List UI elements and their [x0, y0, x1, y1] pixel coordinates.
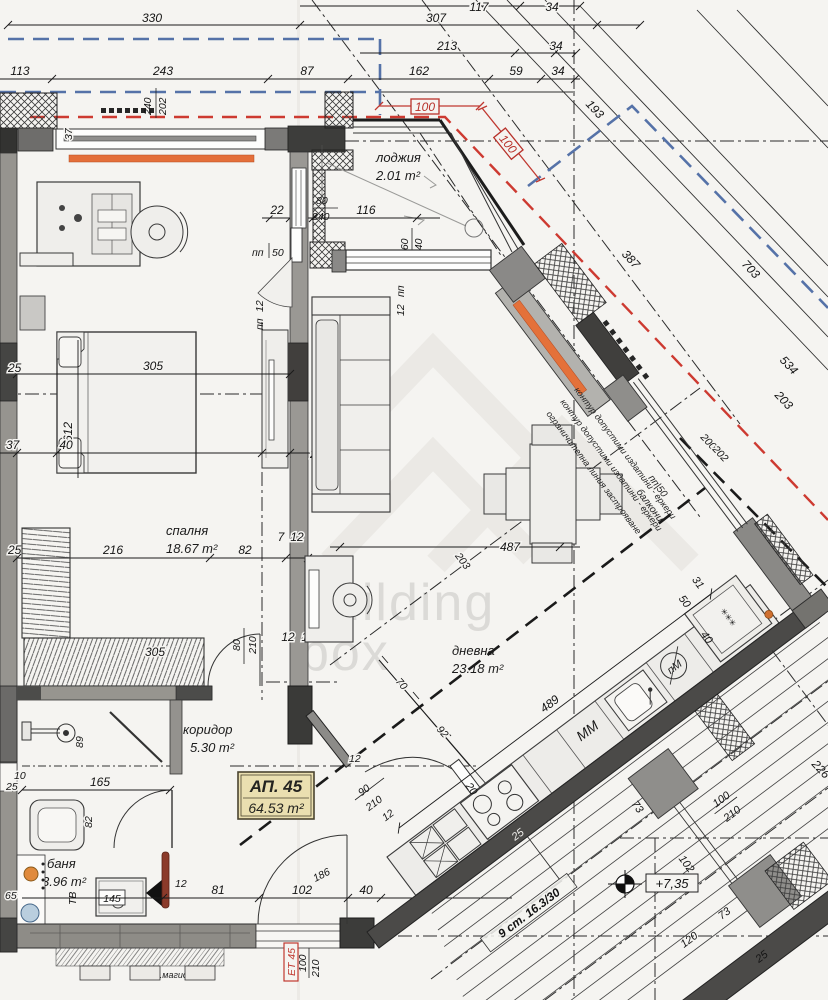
svg-text:307: 307 [426, 11, 447, 25]
svg-text:12: 12 [395, 304, 407, 316]
svg-text:5.30 m²: 5.30 m² [190, 740, 235, 755]
svg-text:дневна: дневна [452, 643, 495, 658]
svg-text:25: 25 [7, 361, 22, 375]
svg-text:пп: пп [252, 247, 264, 259]
svg-text:ЕТ 45: ЕТ 45 [286, 948, 298, 976]
svg-text:34: 34 [551, 64, 565, 78]
svg-text:82: 82 [238, 543, 252, 557]
svg-text:213: 213 [436, 39, 457, 53]
svg-text:165: 165 [90, 775, 110, 789]
svg-text:18.67 m²: 18.67 m² [166, 541, 218, 556]
svg-text:162: 162 [409, 64, 429, 78]
svg-text:81: 81 [211, 883, 224, 897]
svg-text:37: 37 [6, 438, 21, 452]
svg-text:100: 100 [415, 100, 435, 114]
svg-text:пп: пп [395, 285, 407, 297]
svg-text:487: 487 [500, 540, 521, 554]
svg-text:102: 102 [292, 883, 312, 897]
svg-text:+7,35: +7,35 [656, 876, 690, 891]
svg-text:50: 50 [272, 247, 284, 259]
svg-text:12: 12 [254, 300, 266, 312]
svg-text:80: 80 [231, 639, 243, 651]
svg-text:305: 305 [145, 645, 165, 659]
svg-text:34: 34 [545, 0, 559, 14]
svg-text:240: 240 [142, 97, 154, 116]
svg-text:пп: пп [254, 318, 266, 330]
svg-text:305: 305 [143, 359, 163, 373]
svg-text:2.01 m²: 2.01 m² [375, 168, 421, 183]
svg-text:25: 25 [5, 781, 18, 793]
svg-text:12: 12 [175, 878, 187, 890]
svg-text:40: 40 [359, 883, 373, 897]
svg-text:89: 89 [74, 736, 86, 748]
svg-text:12: 12 [349, 753, 361, 765]
svg-text:216: 216 [102, 543, 123, 557]
svg-text:82: 82 [83, 816, 95, 828]
svg-text:116: 116 [356, 203, 375, 217]
svg-text:59: 59 [509, 64, 523, 78]
svg-text:145: 145 [103, 893, 121, 905]
svg-text:лоджия: лоджия [375, 150, 421, 165]
svg-text:202: 202 [157, 97, 169, 116]
svg-text:12: 12 [290, 530, 304, 544]
svg-text:АП. 45: АП. 45 [249, 777, 303, 796]
svg-text:100: 100 [297, 954, 309, 972]
svg-text:80: 80 [316, 195, 328, 207]
svg-text:113: 113 [10, 64, 29, 78]
svg-text:3.96 m²: 3.96 m² [42, 874, 87, 889]
svg-text:37: 37 [63, 127, 75, 140]
svg-text:64.53 m²: 64.53 m² [248, 800, 305, 816]
svg-text:спалня: спалня [166, 523, 208, 538]
svg-text:12: 12 [281, 630, 295, 644]
svg-text:22: 22 [269, 203, 284, 217]
svg-text:баня: баня [47, 856, 76, 871]
svg-text:40: 40 [59, 438, 73, 452]
svg-text:65: 65 [5, 890, 17, 902]
svg-text:210: 210 [310, 959, 322, 978]
svg-text:коридор: коридор [183, 722, 232, 737]
svg-text:243: 243 [152, 64, 173, 78]
svg-text:87: 87 [300, 64, 315, 78]
svg-text:23.18 m²: 23.18 m² [451, 661, 504, 676]
svg-text:34: 34 [549, 39, 563, 53]
svg-text:117: 117 [469, 0, 489, 14]
svg-text:210: 210 [247, 636, 259, 655]
svg-text:330: 330 [142, 11, 162, 25]
